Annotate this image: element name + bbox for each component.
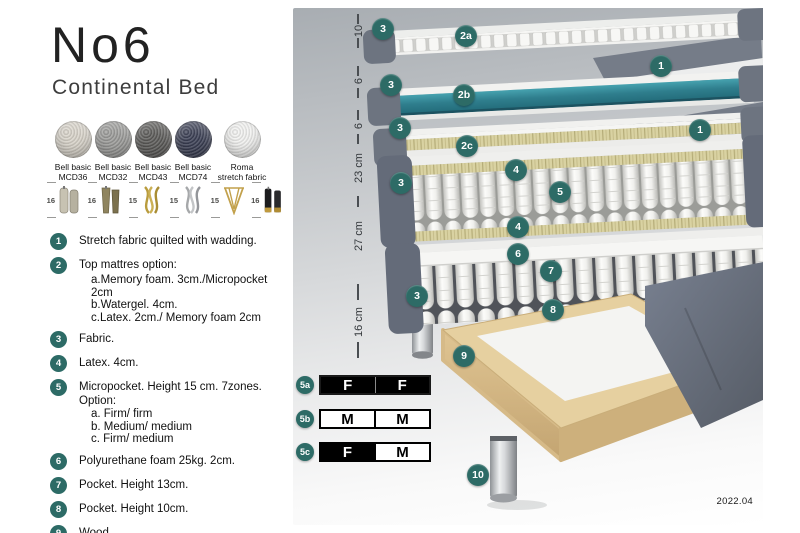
firmness-cell: M	[321, 411, 374, 427]
firmness-cell: M	[374, 411, 429, 427]
feature-subitem: c.Latex. 2cm./ Memory foam 2cm	[91, 312, 288, 325]
feature-item: 9 Wood.	[50, 525, 288, 533]
callout-badge: 3	[372, 18, 394, 40]
feature-text: Latex. 4cm.	[79, 355, 138, 370]
feature-item: 8 Pocket. Height 10cm.	[50, 501, 288, 518]
ruler-tick	[357, 134, 359, 144]
leg-height-label: 16	[86, 196, 96, 205]
firmness-bar: F F	[319, 375, 431, 395]
feature-number-badge: 1	[50, 233, 67, 250]
version-label: 2022.04	[717, 496, 753, 507]
feature-item: 2 Top mattres option: a.Memory foam. 3cm…	[50, 257, 288, 324]
swatch-mcd36: Bell basicMCD36	[53, 121, 93, 182]
product-sheet: No6 Continental Bed Bell basicMCD36 Bell…	[0, 0, 800, 533]
diagram-panel: 10 6 6 23 cm 27 cm 16 cm 3 2a 1 3 2b 3 2…	[293, 8, 763, 525]
callout-badge: 8	[542, 299, 564, 321]
callout-badge: 4	[507, 216, 529, 238]
feature-item: 6 Polyurethane foam 25kg. 2cm.	[50, 453, 288, 470]
feature-number-badge: 6	[50, 453, 67, 470]
swatch-label: Bell basicMCD36	[55, 163, 91, 182]
ruler-label: 23 cm	[352, 148, 366, 188]
twisted-gold-leg-icon	[139, 185, 165, 215]
leg-option: 16	[250, 182, 286, 218]
front-leg	[487, 436, 547, 510]
leg-height-label: 15	[209, 196, 219, 205]
feature-subitem: c. Firm/ medium	[91, 433, 288, 446]
firmness-cell: F	[375, 377, 430, 393]
feature-subitem: b.Watergel. 4cm.	[91, 299, 288, 312]
firmness-row-5a: 5a F F	[296, 375, 431, 395]
ruler-label: 27 cm	[352, 216, 366, 256]
black-gold-leg-icon	[261, 185, 286, 215]
swatch-mcd43: Bell basicMCD43	[133, 121, 173, 182]
cylinder-pair-leg-icon	[57, 185, 83, 215]
firmness-row-5b: 5b M M	[296, 409, 431, 429]
feature-subitem: a. Firm/ firm	[91, 408, 288, 421]
feature-text: Polyurethane foam 25kg. 2cm.	[79, 453, 235, 468]
feature-list: 1 Stretch fabric quilted with wadding. 2…	[50, 233, 288, 533]
square-pair-leg-icon	[98, 185, 124, 215]
callout-badge: 3	[390, 172, 412, 194]
callout-badge: 3	[380, 74, 402, 96]
feature-item: 5 Micropocket. Height 15 cm. 7zones. Opt…	[50, 379, 288, 446]
callout-badge: 3	[389, 117, 411, 139]
fabric-swatch-icon	[175, 121, 212, 158]
leg-options: 16 16 15	[45, 182, 286, 218]
feature-text: Wood.	[79, 525, 112, 533]
feature-number-badge: 9	[50, 525, 67, 533]
feature-text: Fabric.	[79, 331, 114, 346]
swatch-label: Bell basicMCD43	[135, 163, 171, 182]
feature-number-badge: 7	[50, 477, 67, 494]
ruler-label: 10	[352, 11, 366, 51]
callout-badge: 3	[406, 285, 428, 307]
firmness-bar: F M	[319, 442, 431, 462]
feature-text: Pocket. Height 13cm.	[79, 477, 188, 492]
callout-badge: 2c	[456, 135, 478, 157]
callout-badge: 2b	[453, 84, 475, 106]
callout-badge: 7	[540, 260, 562, 282]
feature-number-badge: 5	[50, 379, 67, 396]
feature-item: 1 Stretch fabric quilted with wadding.	[50, 233, 288, 250]
feature-number-badge: 8	[50, 501, 67, 518]
feature-subitem: b. Medium/ medium	[91, 421, 288, 434]
callout-badge: 1	[650, 55, 672, 77]
feature-number-badge: 4	[50, 355, 67, 372]
ruler-tick	[357, 88, 359, 98]
ruler-label: 16 cm	[352, 302, 366, 342]
feature-text: Micropocket. Height 15 cm. 7zones. Optio…	[79, 379, 288, 408]
fabric-swatch-icon	[55, 121, 92, 158]
ruler-tick	[357, 38, 359, 48]
firmness-row-badge: 5c	[296, 443, 314, 461]
callout-badge: 9	[453, 345, 475, 367]
leg-option: 15	[127, 182, 168, 218]
feature-sublist: a. Firm/ firm b. Medium/ medium c. Firm/…	[91, 408, 288, 446]
callout-badge: 2a	[455, 25, 477, 47]
firmness-cell: F	[321, 377, 375, 393]
firmness-row-5c: 5c F M	[296, 442, 431, 462]
leg-option: 16	[86, 182, 127, 218]
swatch-roma: Romastretch fabric	[213, 121, 271, 182]
swatch-mcd74: Bell basicMCD74	[173, 121, 213, 182]
page-title: No6	[51, 16, 155, 74]
twisted-silver-leg-icon	[180, 185, 206, 215]
ruler-tick	[357, 284, 359, 300]
firmness-bar: M M	[319, 409, 431, 429]
callout-badge: 4	[505, 159, 527, 181]
callout-badge: 1	[689, 119, 711, 141]
leg-option: 15	[209, 182, 250, 218]
ruler-label: 6	[352, 106, 366, 146]
leg-height-label: 16	[45, 196, 55, 205]
feature-item: 3 Fabric.	[50, 331, 288, 348]
ruler-tick	[357, 196, 359, 207]
ruler-tick	[357, 342, 359, 358]
ruler-label: 6	[352, 61, 366, 101]
leg-height-label: 15	[168, 196, 178, 205]
feature-text: Pocket. Height 10cm.	[79, 501, 188, 516]
firmness-row-badge: 5a	[296, 376, 314, 394]
fabric-swatches: Bell basicMCD36 Bell basicMCD32 Bell bas…	[53, 121, 271, 182]
feature-item: 7 Pocket. Height 13cm.	[50, 477, 288, 494]
feature-number-badge: 3	[50, 331, 67, 348]
swatch-label: Bell basicMCD32	[95, 163, 131, 182]
swatch-label: Bell basicMCD74	[175, 163, 211, 182]
callout-badge: 10	[467, 464, 489, 486]
firmness-cell: M	[374, 444, 429, 460]
leg-height-label: 15	[127, 196, 137, 205]
leg-height-label: 16	[250, 196, 259, 205]
leg-option: 16	[45, 182, 86, 218]
callout-badge: 5	[549, 181, 571, 203]
fabric-swatch-icon	[224, 121, 261, 158]
firmness-cell: F	[321, 444, 374, 460]
leg-option: 15	[168, 182, 209, 218]
fabric-swatch-icon	[135, 121, 172, 158]
feature-text: Stretch fabric quilted with wadding.	[79, 233, 257, 248]
swatch-mcd32: Bell basicMCD32	[93, 121, 133, 182]
page-subtitle: Continental Bed	[52, 76, 219, 100]
swatch-label: Romastretch fabric	[218, 163, 267, 182]
feature-number-badge: 2	[50, 257, 67, 274]
feature-text: Top mattres option:	[79, 257, 177, 272]
callout-badge: 6	[507, 243, 529, 265]
feature-subitem: a.Memory foam. 3cm./Micropocket 2cm	[91, 274, 288, 299]
fabric-swatch-icon	[95, 121, 132, 158]
feature-item: 4 Latex. 4cm.	[50, 355, 288, 372]
feature-sublist: a.Memory foam. 3cm./Micropocket 2cm b.Wa…	[91, 274, 288, 324]
firmness-row-badge: 5b	[296, 410, 314, 428]
hairpin-leg-icon	[221, 185, 247, 215]
